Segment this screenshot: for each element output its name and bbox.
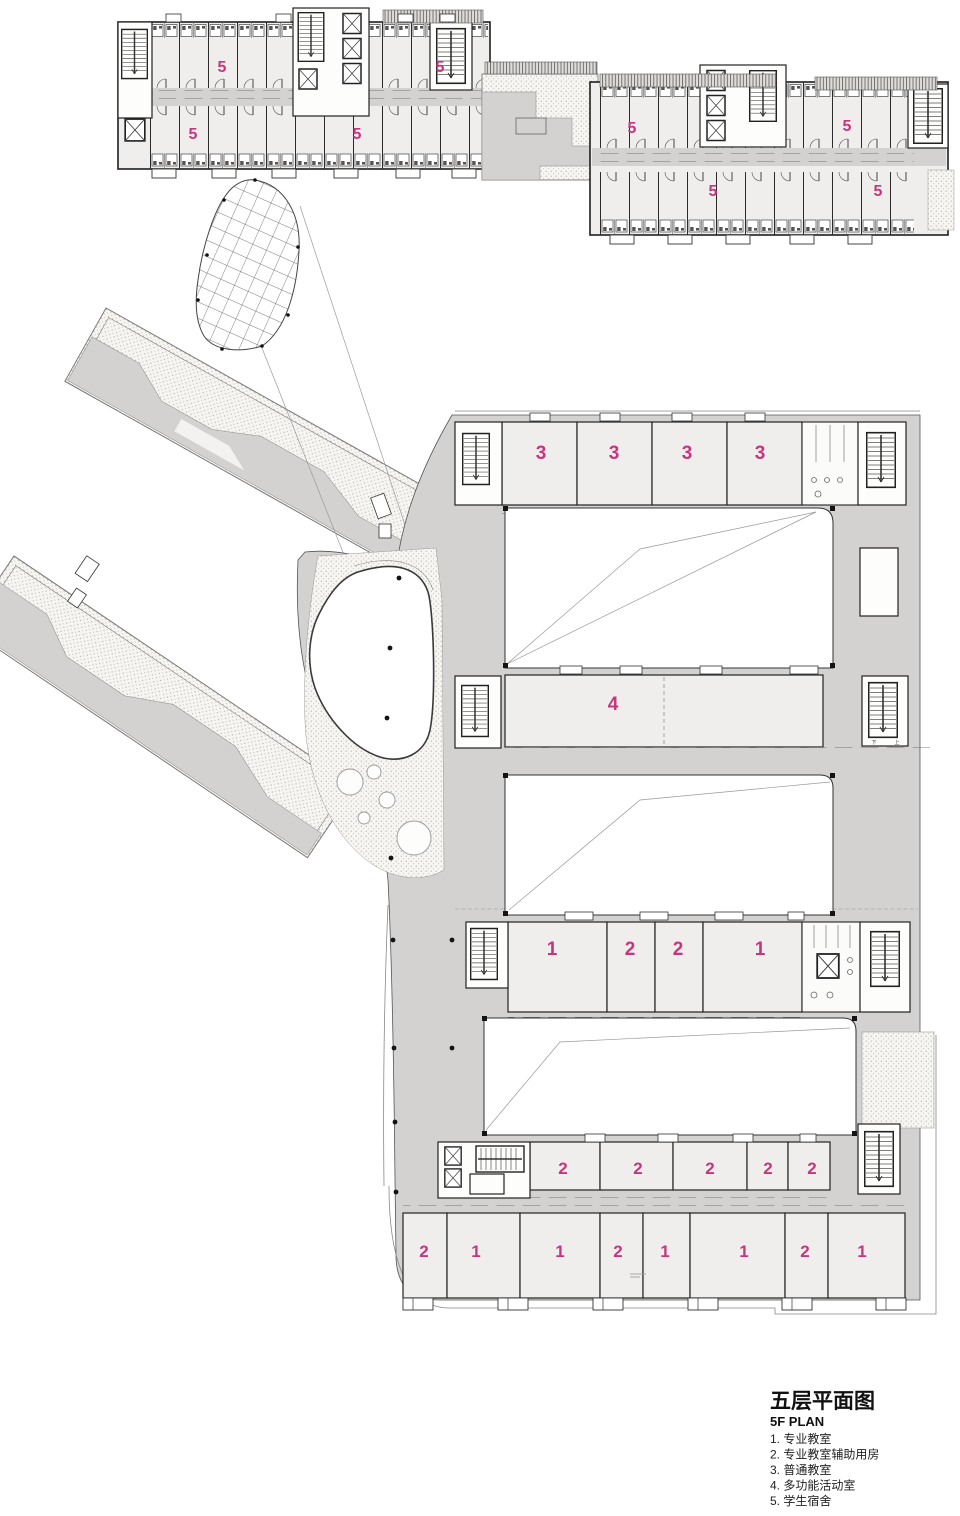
room-label: 2	[633, 1159, 642, 1178]
elevator-icon	[343, 39, 361, 59]
stair-icon	[914, 89, 943, 144]
dorm-wing-b	[590, 65, 954, 244]
room-label: 3	[682, 443, 693, 464]
stair-icon	[476, 1146, 524, 1172]
legend-item: 1. 专业教室	[770, 1431, 831, 1446]
room-label: 2	[673, 939, 684, 960]
room-label: 2	[705, 1159, 714, 1178]
stair-direction: 上	[894, 739, 899, 746]
room-label: 4	[608, 694, 619, 715]
room-label: 2	[807, 1159, 816, 1178]
room-label: 1	[660, 1242, 669, 1261]
classroom-row-1221	[466, 912, 910, 1021]
elevator-icon	[817, 954, 839, 978]
room-label: 1	[555, 1242, 564, 1261]
legend-title-en: 5F PLAN	[770, 1414, 824, 1429]
room-label: 5	[843, 118, 852, 135]
legend-title-zh: 五层平面图	[770, 1390, 875, 1413]
room-label: 3	[755, 443, 766, 464]
stair-icon	[122, 29, 148, 78]
annex-room	[860, 548, 898, 616]
room-label: 2	[613, 1242, 622, 1261]
elevator-icon	[445, 1169, 461, 1187]
room-label: 1	[755, 939, 766, 960]
stair-icon	[462, 686, 489, 737]
stair-icon	[471, 929, 498, 980]
courtyard-2	[503, 773, 835, 916]
classroom-row-3	[455, 413, 906, 515]
room-label: 2	[625, 939, 636, 960]
legend-item: 5. 学生宿舍	[770, 1493, 831, 1508]
stair-icon	[867, 433, 896, 488]
room-label: 1	[471, 1242, 480, 1261]
stair-icon	[865, 1132, 894, 1187]
planter	[379, 524, 391, 538]
dorm-link-terrace	[482, 62, 598, 180]
room-label: 5	[353, 126, 362, 143]
room-label: 3	[536, 443, 547, 464]
room-label: 2	[419, 1242, 428, 1261]
room-label: 1	[739, 1242, 748, 1261]
planter	[516, 118, 546, 134]
dotted-terrace-small	[928, 170, 954, 230]
legend-item: 2. 专业教室辅助用房	[770, 1447, 879, 1462]
green-roof-strip	[485, 62, 597, 74]
room-label: 1	[857, 1242, 866, 1261]
stair-icon	[869, 683, 898, 738]
room-label: 2	[763, 1159, 772, 1178]
elevator-icon	[445, 1147, 461, 1165]
elevator-icon	[125, 119, 145, 141]
room-label: 5	[628, 120, 637, 137]
legend-item: 4. 多功能活动室	[770, 1478, 855, 1493]
room-label: 2	[558, 1159, 567, 1178]
elevator-icon	[299, 69, 317, 89]
green-roof-strip	[815, 77, 937, 90]
stair-icon	[463, 434, 490, 485]
stair-icon	[871, 932, 900, 987]
room-label: 2	[800, 1242, 809, 1261]
legend-item: 3. 普通教室	[770, 1462, 831, 1477]
elevator-icon	[707, 96, 725, 116]
dorm-wing-a	[118, 8, 490, 178]
elevator-icon	[707, 121, 725, 141]
floor-plan-page: 下 上	[0, 0, 960, 1516]
room-label: 5	[874, 183, 883, 200]
elevator-icon	[343, 14, 361, 34]
room-label: 5	[189, 126, 198, 143]
floor-plan-svg: 下 上	[0, 0, 960, 1516]
stair-icon	[298, 13, 324, 62]
stair-direction: 下	[871, 740, 876, 746]
room-label: 1	[547, 939, 558, 960]
room-label: 5	[709, 183, 718, 200]
room-label: 5	[218, 59, 227, 76]
green-roof-strip	[600, 74, 776, 87]
room-label: 3	[609, 443, 620, 464]
room-label: 5	[436, 59, 445, 76]
elevator-icon	[343, 64, 361, 84]
dotted-terrace-right	[862, 1032, 934, 1128]
